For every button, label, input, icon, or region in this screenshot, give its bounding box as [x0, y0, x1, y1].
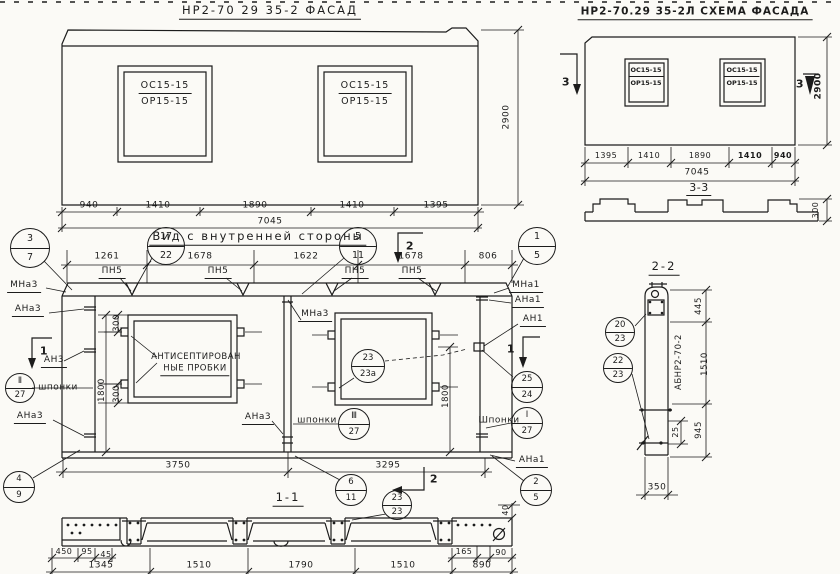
s11-sub-dim: 95	[81, 548, 92, 556]
anchor-label-mna3-center: МНа3	[298, 310, 332, 322]
keys-label-left: шпонки	[38, 384, 78, 393]
s22-small-dim: 25	[672, 426, 680, 437]
interior-dim-1800-right: 1800	[442, 384, 451, 408]
facade-window2-label: ОС15-15 ОР15-15	[339, 80, 392, 107]
plugs-note-line2: НЫЕ ПРОБКИ	[160, 364, 229, 376]
facade-dim: 1410	[340, 202, 365, 211]
scheme-window2-label: ОС15-15 ОР15-15	[724, 66, 759, 87]
interior-top-dim: 806	[479, 253, 498, 262]
s11-sub-dim: 450	[56, 548, 73, 556]
section-1-marker-right: 1	[507, 344, 515, 355]
interior-top-dim: 1622	[294, 253, 319, 262]
window-type-top: ОС15-15	[628, 66, 663, 77]
window-type-bottom: ОР15-15	[628, 79, 663, 87]
window-type-bottom: ОР15-15	[139, 96, 192, 107]
facade-total-dim: 7045	[258, 218, 283, 227]
s11-top-dim-40: 40	[502, 504, 510, 515]
keys-label-center: шпонки	[297, 417, 337, 426]
window-type-top: ОС15-15	[724, 66, 759, 77]
joint-label: ПН5	[99, 267, 126, 279]
anchor-label-ana1: АНа1	[512, 296, 544, 308]
s22-dim: 1510	[701, 352, 710, 376]
joint-label: ПН5	[205, 267, 232, 279]
window-type-top: ОС15-15	[339, 80, 392, 94]
section-3-3-title: 3-3	[686, 182, 711, 196]
facade-title: НР2-70 29 35-2 ФАСАД	[179, 5, 361, 20]
s11-sub-dim: 45	[100, 551, 111, 559]
s22-dim: 945	[695, 421, 704, 439]
s11-sub-dim: 90	[495, 549, 506, 557]
plugs-note-line1: АНТИСЕПТИРОВАН	[151, 353, 241, 362]
profile-height-dim: 300	[812, 202, 820, 219]
section-3-marker-right: 3	[796, 79, 804, 90]
window-type-bottom: ОР15-15	[339, 96, 392, 107]
anchor-label-ana3-mid: АНа3	[14, 412, 46, 424]
scheme-total-dim: 7045	[685, 169, 710, 178]
section-1-1-title: 1-1	[273, 492, 304, 507]
section-1-marker-left: 1	[40, 346, 48, 357]
callout-17-22: 1722	[147, 227, 185, 265]
callout-3-7: 37	[10, 228, 50, 268]
callout-5-11: 511	[339, 227, 377, 265]
facade-dim: 1890	[243, 202, 268, 211]
s22-width-dim: 350	[648, 484, 667, 493]
interior-top-dim: 1261	[95, 253, 120, 262]
scheme-dim: 1890	[689, 152, 711, 160]
section-3-marker-left: 3	[562, 77, 570, 88]
scheme-dim: 1395	[595, 152, 617, 160]
callout-4-9: 49	[3, 471, 35, 503]
window-type-bottom: ОР15-15	[724, 79, 759, 87]
blueprint-page: НР2-70 29 35-2 ФАСАД ОС15-15 ОР15-15 ОС1…	[0, 0, 840, 574]
interior-dim-1800-left: 1800	[98, 378, 107, 402]
callout-2-5: 25	[520, 474, 552, 506]
s11-main-dim: 1790	[289, 562, 314, 571]
interior-bottom-dim: 3295	[376, 462, 401, 471]
s11-main-dim: 890	[473, 562, 492, 571]
callout-I-27: Ⅰ27	[511, 407, 543, 439]
interior-dim-300-bottom: 300	[113, 385, 122, 403]
scheme-title: НР2-70.29 35-2Л СХЕМА ФАСАДА	[578, 6, 813, 20]
callout-25-24: 2524	[511, 371, 543, 403]
interior-bottom-dim: 3750	[166, 462, 191, 471]
scheme-window1-label: ОС15-15 ОР15-15	[628, 66, 663, 87]
s11-sub-dim: 165	[456, 548, 473, 556]
window-type-top: ОС15-15	[139, 80, 192, 94]
facade-height-dim: 2900	[503, 105, 512, 130]
s11-main-dim: 1345	[89, 562, 114, 571]
scheme-dim: 1410	[638, 152, 660, 160]
callout-II-27: Ⅱ27	[5, 373, 35, 403]
s22-dim: 445	[695, 297, 704, 315]
callout-20-23: 2023	[605, 317, 635, 347]
section-2-marker-bottom: 2	[430, 474, 438, 485]
section-2-2-title: 2-2	[649, 261, 680, 276]
callout-III-27: Ⅲ27	[338, 408, 370, 440]
section-2-marker-top: 2	[406, 241, 414, 252]
interior-top-dim: 1678	[188, 253, 213, 262]
callout-22-23: 2223	[603, 353, 633, 383]
anchor-label-mna1: МНа1	[509, 281, 543, 293]
facade-window1-label: ОС15-15 ОР15-15	[139, 80, 192, 107]
callout-23-23a: 2323а	[351, 349, 385, 383]
panel-part-label: АБНР2-70-2	[675, 334, 684, 390]
callout-6-11: 611	[335, 474, 367, 506]
anchor-label-mna3: МНа3	[7, 281, 41, 293]
callout-1-5: 15	[518, 227, 556, 265]
drawing-linework	[0, 0, 840, 574]
scheme-dim: 1410	[738, 152, 762, 160]
interior-top-dim: 1678	[399, 253, 424, 262]
joint-label: ПН5	[399, 267, 426, 279]
interior-dim-300-top: 300	[113, 314, 122, 332]
scheme-height-dim: 2900	[815, 72, 824, 99]
anchor-label-an1: АН1	[520, 315, 546, 327]
scheme-dim: 940	[774, 152, 792, 160]
callout-23-23: 2323	[382, 490, 412, 520]
anchor-label-an3: АН3	[41, 356, 67, 368]
facade-dim: 1410	[146, 202, 171, 211]
facade-dim: 940	[80, 202, 99, 211]
anchor-label-ana3: АНа3	[12, 305, 44, 317]
s11-main-dim: 1510	[391, 562, 416, 571]
anchor-label-ana3-center: АНа3	[242, 413, 274, 425]
joint-label: ПН5	[342, 267, 369, 279]
anchor-label-ana1-bottom: АНа1	[516, 456, 548, 468]
s11-main-dim: 1510	[187, 562, 212, 571]
facade-dim: 1395	[424, 202, 449, 211]
